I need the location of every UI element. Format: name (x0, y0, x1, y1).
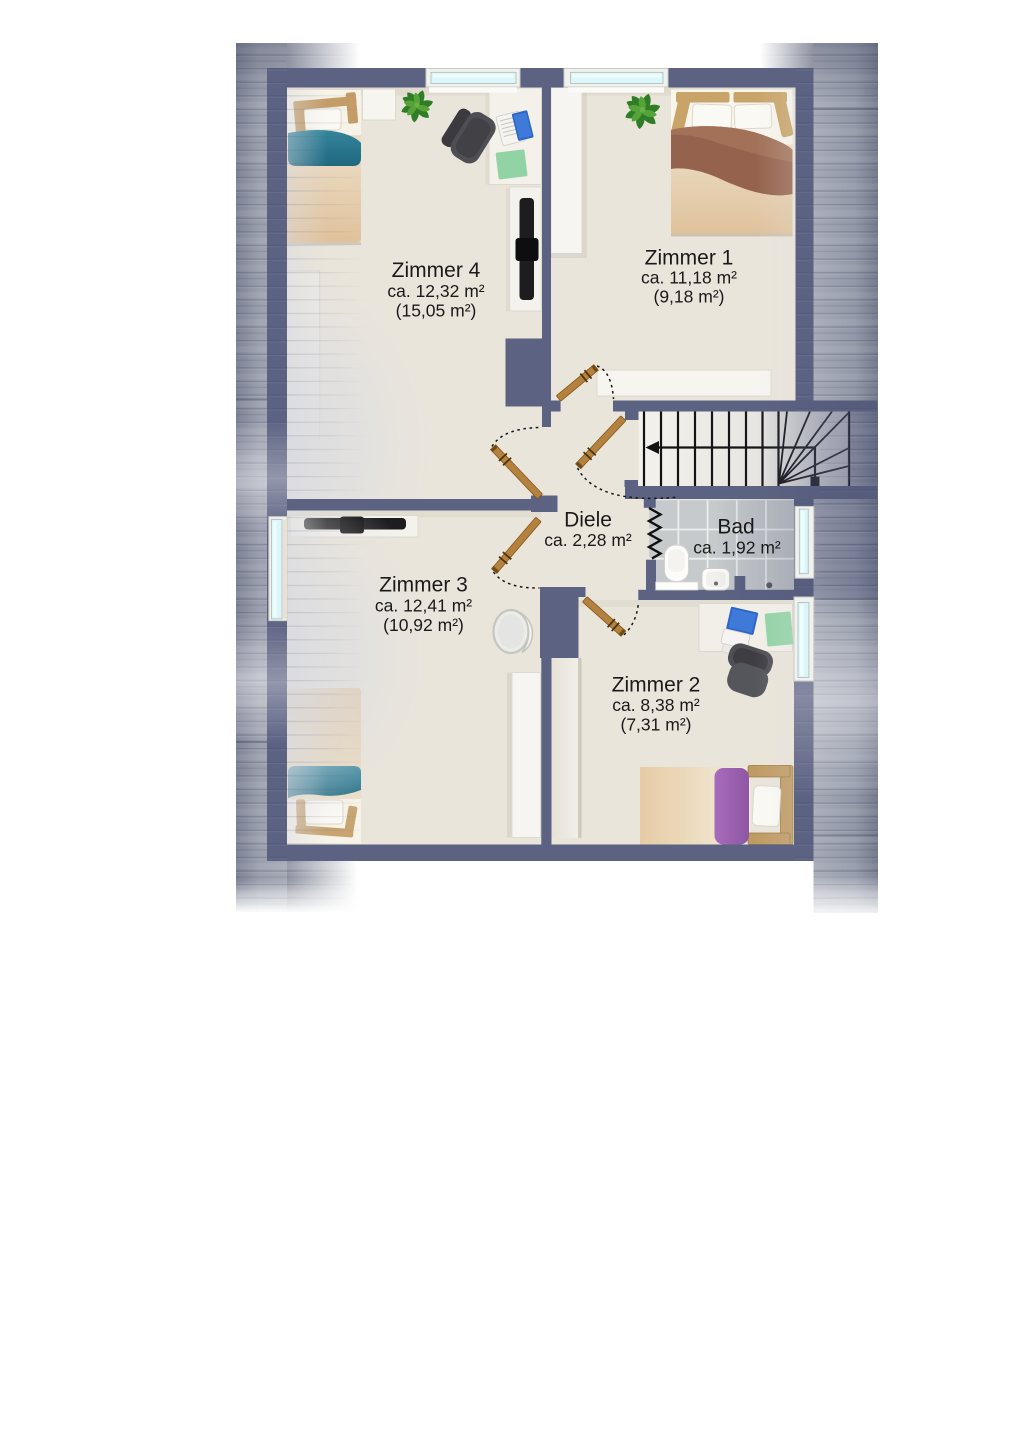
svg-text:(9,18 m²): (9,18 m²) (654, 287, 725, 307)
svg-text:ca. 11,18 m²: ca. 11,18 m² (641, 268, 737, 288)
svg-text:Diele: Diele (564, 508, 612, 531)
svg-text:ca. 8,38 m²: ca. 8,38 m² (612, 695, 700, 715)
svg-text:ca. 12,41 m²: ca. 12,41 m² (375, 596, 472, 616)
svg-text:ca. 1,92 m²: ca. 1,92 m² (693, 538, 781, 558)
svg-text:(10,92 m²): (10,92 m²) (383, 615, 464, 635)
svg-text:ca. 12,32 m²: ca. 12,32 m² (387, 281, 484, 301)
svg-text:Bad: Bad (717, 515, 754, 538)
svg-text:(15,05 m²): (15,05 m²) (396, 301, 477, 321)
svg-text:ca. 2,28 m²: ca. 2,28 m² (544, 530, 632, 550)
svg-text:(7,31 m²): (7,31 m²) (621, 715, 692, 735)
svg-text:Zimmer 2: Zimmer 2 (612, 674, 701, 697)
svg-text:Zimmer 1: Zimmer 1 (645, 247, 734, 270)
svg-text:Zimmer 4: Zimmer 4 (392, 259, 481, 282)
svg-text:Zimmer 3: Zimmer 3 (379, 574, 468, 597)
